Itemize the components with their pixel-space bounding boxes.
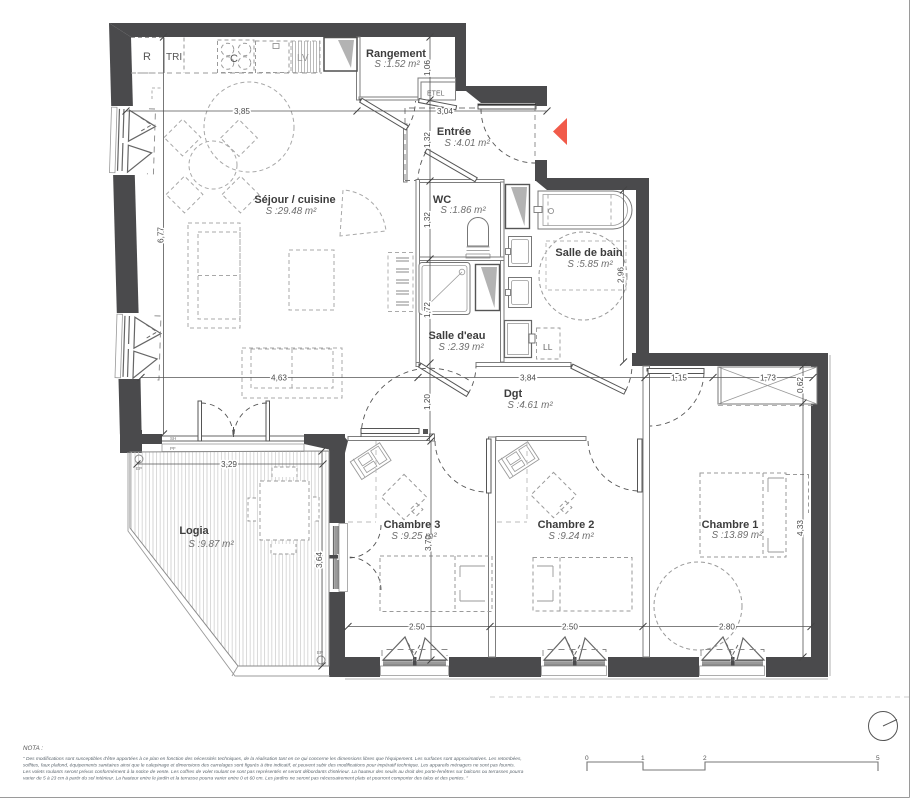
svg-text:LL: LL [543,342,553,352]
svg-text:3,84: 3,84 [520,374,536,383]
svg-text:S :1.86 m²: S :1.86 m² [440,205,486,216]
svg-text:C: C [230,53,238,65]
svg-text:2.50: 2.50 [409,623,425,632]
svg-text:S :9.87 m²: S :9.87 m² [188,539,234,550]
svg-text:S :4.61 m²: S :4.61 m² [507,400,553,411]
svg-text:NOTA :: NOTA : [23,745,43,752]
svg-text:2: 2 [703,755,707,762]
svg-text:Chambre 3: Chambre 3 [384,519,441,531]
svg-text:Logia: Logia [179,525,209,537]
svg-text:PF: PF [170,446,176,451]
svg-text:5: 5 [876,755,880,762]
svg-text:Chambre 2: Chambre 2 [538,519,595,531]
svg-text:Salle de bain: Salle de bain [555,247,623,259]
svg-text:1,32: 1,32 [423,212,432,228]
svg-text:3,64: 3,64 [315,552,324,568]
svg-text:S :1.52 m²: S :1.52 m² [374,59,420,70]
svg-text:S :13.89 m²: S :13.89 m² [712,530,763,541]
svg-text:" Des modifications sont susce: " Des modifications sont susceptibles d'… [23,756,522,762]
svg-text:4,33: 4,33 [796,520,805,536]
svg-text:varier de 5 à 23 cm à partir d: varier de 5 à 23 cm à partir du sol inté… [23,776,468,782]
svg-text:1,06: 1,06 [423,60,432,76]
svg-text:2.80: 2.80 [719,623,735,632]
svg-text:3,85: 3,85 [234,107,250,116]
svg-text:3,04: 3,04 [437,107,453,116]
svg-text:3,29: 3,29 [221,460,237,469]
svg-text:2,96: 2,96 [617,267,626,283]
svg-text:1,32: 1,32 [423,132,432,148]
svg-text:Séjour / cuisine: Séjour / cuisine [254,194,335,206]
svg-text:1,72: 1,72 [423,302,432,318]
svg-text:R: R [143,51,151,63]
svg-text:S :4.01 m²: S :4.01 m² [444,138,490,149]
svg-text:LV: LV [297,53,309,64]
svg-text:Entrée: Entrée [437,126,471,138]
svg-text:2.50: 2.50 [562,623,578,632]
svg-text:1,73: 1,73 [760,374,776,383]
svg-text:4,63: 4,63 [271,374,287,383]
svg-text:Les volets roulants seront pré: Les volets roulants seront prévus confor… [23,769,524,775]
svg-text:6,77: 6,77 [157,227,166,243]
svg-text:0,62: 0,62 [796,377,805,393]
svg-text:SH: SH [170,436,176,441]
svg-text:ETEL: ETEL [427,91,445,98]
svg-text:S :2.39 m²: S :2.39 m² [438,342,484,353]
svg-text:Dgt: Dgt [504,388,523,400]
svg-text:Salle d'eau: Salle d'eau [428,330,485,342]
svg-text:1,20: 1,20 [423,394,432,410]
svg-text:S :29.48 m²: S :29.48 m² [266,206,317,217]
svg-text:1,15: 1,15 [671,374,687,383]
svg-text:soffites, faux plafond, équipe: soffites, faux plafond, équipements sani… [23,763,515,769]
svg-text:1: 1 [641,755,645,762]
svg-text:0: 0 [585,755,589,762]
svg-text:S :9.25 m²: S :9.25 m² [391,531,437,542]
svg-text:TRI: TRI [166,52,182,63]
svg-text:EP: EP [136,466,142,471]
svg-text:S :5.85 m²: S :5.85 m² [567,259,613,270]
svg-text:S :9.24 m²: S :9.24 m² [548,531,594,542]
